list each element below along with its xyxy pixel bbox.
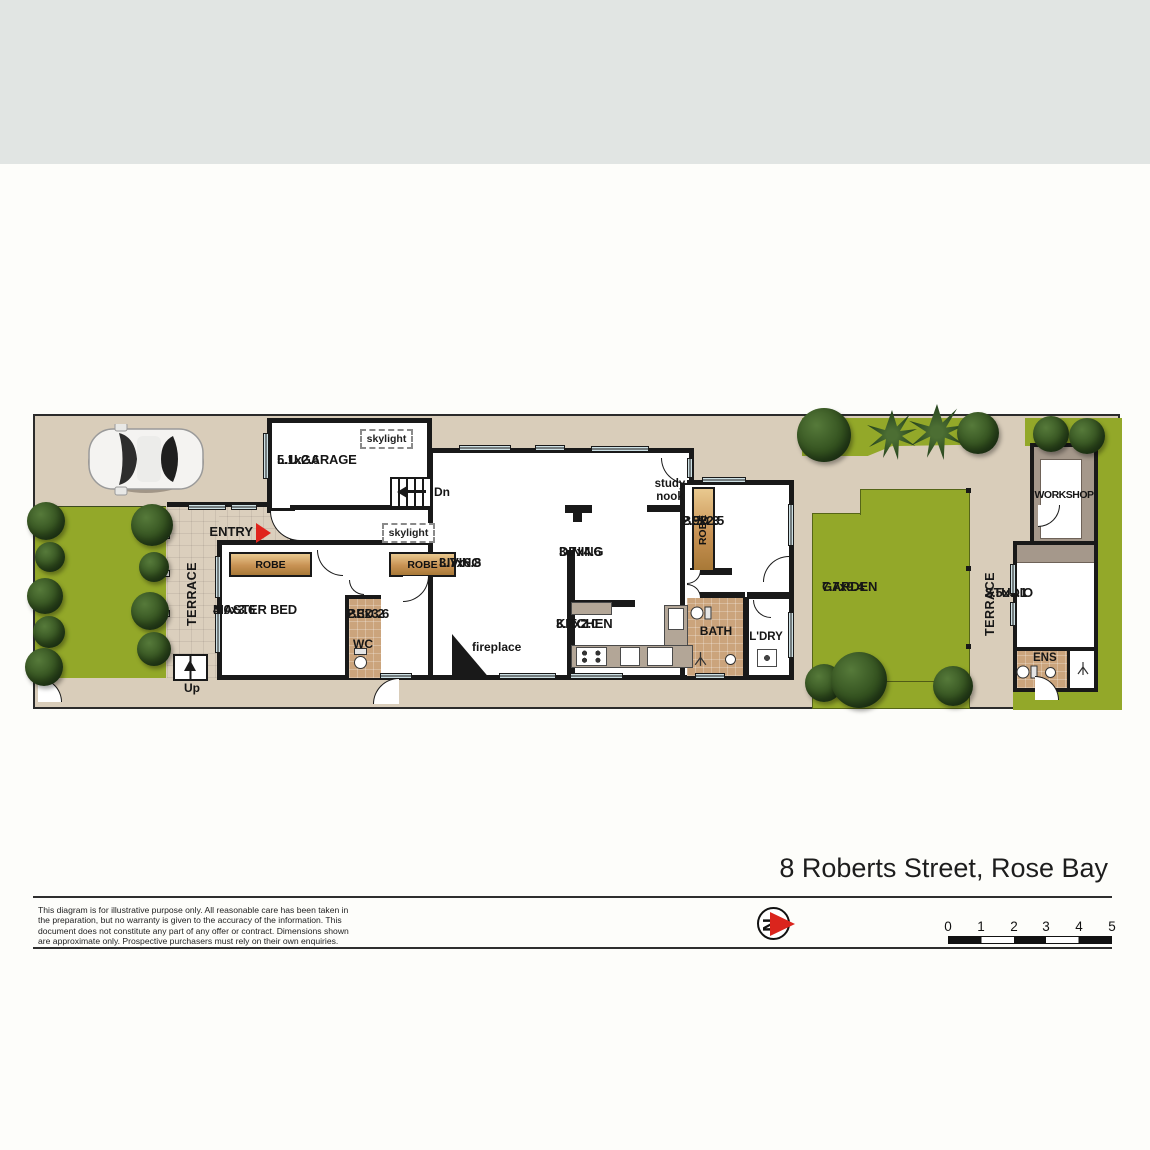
tree — [1069, 418, 1105, 454]
window — [570, 673, 623, 679]
window — [499, 673, 556, 679]
divider — [33, 896, 1112, 898]
robe-label: ROBE — [407, 559, 437, 571]
fence-post — [966, 566, 971, 571]
window — [591, 446, 649, 452]
window — [1010, 564, 1016, 594]
ensuite-label: ENS — [1033, 652, 1057, 664]
north-compass-icon: N — [757, 907, 790, 940]
tree — [131, 504, 173, 546]
tree — [25, 648, 63, 686]
skylight-label: skylight — [389, 527, 429, 539]
tree — [831, 652, 887, 708]
workshop-label: WORKSHOP — [1030, 489, 1098, 501]
studio-wall-strip — [1017, 545, 1094, 563]
kitchen-appliance — [668, 608, 684, 630]
room-studio: STUDIO 2.5x3.1 — [1013, 541, 1098, 651]
window — [215, 613, 221, 653]
disclaimer-line: This diagram is for illustrative purpose… — [38, 905, 368, 915]
skylight-hall: skylight — [382, 523, 435, 543]
entry-label: ENTRY — [181, 524, 253, 539]
scale-tick: 1 — [973, 919, 989, 934]
tree — [33, 616, 65, 648]
window — [263, 433, 269, 479]
terrace-label-left: TERRACE — [185, 554, 199, 634]
room-workshop: WORKSHOP — [1030, 443, 1098, 545]
top-grey-band — [0, 0, 1150, 164]
disclaimer-line: document does not constitute any part of… — [38, 926, 368, 936]
room-dims: 4.0x3.6 — [213, 602, 255, 618]
room-dims: 2.3x3.6 — [347, 606, 389, 622]
tree — [1033, 416, 1069, 452]
wall — [647, 505, 683, 512]
bath-label: BATH — [691, 624, 741, 638]
robe-master: ROBE — [229, 552, 312, 577]
window — [188, 504, 226, 510]
scale-tick: 5 — [1104, 919, 1120, 934]
window — [459, 445, 511, 451]
tree — [137, 632, 171, 666]
kitchen-sink — [620, 647, 640, 666]
fence-post — [966, 644, 971, 649]
ensuite-shower-cell — [1067, 651, 1094, 688]
disclaimer-line: are approximate only. Prospective purcha… — [38, 936, 368, 946]
scale-tick: 3 — [1038, 919, 1054, 934]
laundry-tub — [757, 649, 777, 667]
stairs-down-label: Dn — [434, 485, 450, 499]
toilet-icon — [353, 648, 368, 670]
window — [695, 673, 725, 679]
scale-tick: 0 — [940, 919, 956, 934]
robe-bed3: ROBE — [692, 487, 715, 572]
entry-arrow-icon — [256, 523, 271, 543]
stairs-up-arrow — [184, 660, 196, 671]
tree — [131, 592, 169, 630]
scale-bar: 0 1 2 3 4 5 — [948, 919, 1112, 947]
garden-lawn — [860, 489, 970, 515]
wc-label: WC — [338, 637, 388, 651]
tree — [139, 552, 169, 582]
shower-icon — [1075, 661, 1091, 677]
stairs-down-arrow-stem — [406, 490, 426, 493]
fence-post — [966, 488, 971, 493]
scale-tick: 2 — [1006, 919, 1022, 934]
window — [535, 445, 565, 451]
robe-label: ROBE — [255, 559, 285, 571]
room-dims: 2.9x2.5 — [682, 513, 724, 529]
tree — [797, 408, 851, 462]
page-title: 8 Roberts Street, Rose Bay — [779, 853, 1108, 884]
window — [687, 458, 693, 478]
stove-icon — [576, 647, 607, 666]
wall — [747, 592, 794, 599]
divider — [33, 947, 1112, 949]
toilet-icon — [690, 606, 712, 621]
floorplan-page: ROBE ROBE ROBE WORKSHOP STUDIO 2.5x3.1 E… — [0, 0, 1150, 1150]
fireplace-label: fireplace — [472, 640, 521, 654]
skylight-garage: skylight — [360, 429, 413, 449]
room-dims: 3.7x2.0 — [556, 616, 598, 632]
window — [215, 556, 221, 598]
basin-icon — [725, 654, 736, 665]
basin-icon — [1045, 667, 1056, 678]
terrace-label-right: TERRACE — [983, 564, 997, 644]
car-icon — [85, 424, 207, 496]
tree — [35, 542, 65, 572]
room-dims: 3.7x6.8 — [439, 555, 481, 571]
study-nook-label: study nook — [647, 478, 693, 503]
room-dims: 5.1x2.6 — [277, 452, 319, 468]
north-arrow-icon — [770, 912, 795, 936]
shower-icon — [692, 651, 709, 668]
tree — [933, 666, 973, 706]
tree — [957, 412, 999, 454]
scale-tick: 4 — [1071, 919, 1087, 934]
disclaimer-line: the preparation, but no warranty is give… — [38, 915, 368, 925]
kitchen-bench — [571, 602, 612, 615]
window — [1010, 602, 1016, 626]
room-ensuite: ENS — [1013, 647, 1098, 692]
room-dims: 3.7x4.6 — [559, 544, 601, 560]
room-dims: 7.7x9.4 — [822, 579, 864, 595]
site-plan: ROBE ROBE ROBE WORKSHOP STUDIO 2.5x3.1 E… — [33, 414, 1120, 709]
kitchen-sink — [647, 647, 673, 666]
tree — [27, 578, 63, 614]
wall — [573, 511, 582, 522]
window — [788, 504, 794, 546]
disclaimer-text: This diagram is for illustrative purpose… — [38, 905, 368, 947]
skylight-label: skylight — [367, 433, 407, 445]
tree — [27, 502, 65, 540]
stairs-up-label: Up — [177, 681, 207, 695]
door-arc — [373, 678, 399, 704]
laundry-label: L'DRY — [741, 631, 791, 643]
window — [231, 504, 257, 510]
window — [702, 477, 746, 483]
scale-bar-segments — [948, 936, 1112, 944]
